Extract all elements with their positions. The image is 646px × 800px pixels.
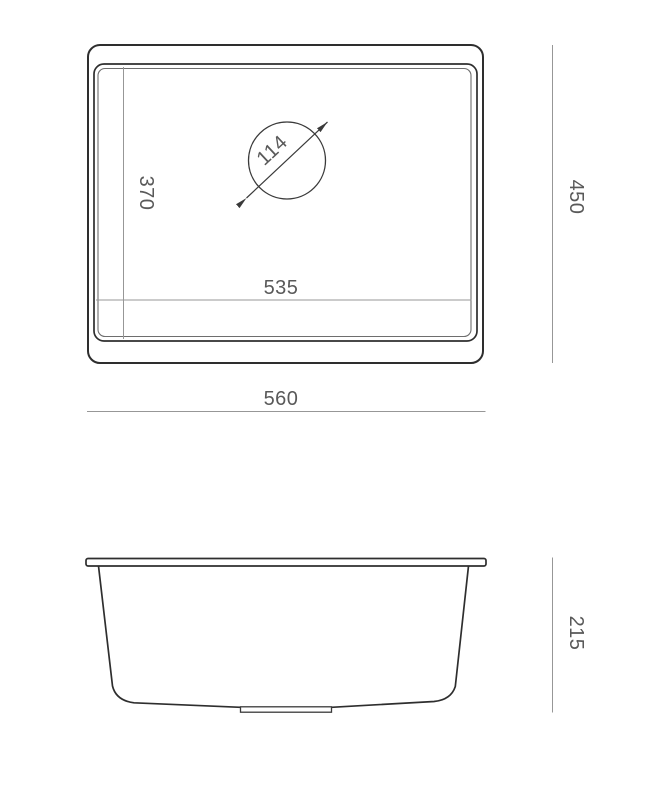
side-view: 215	[86, 558, 587, 713]
overall-width-label: 560	[264, 388, 299, 410]
side-view-drain-fitting	[241, 707, 332, 712]
overall-height-label: 450	[565, 180, 587, 215]
drawing-canvas: 114 370 535 450 560 215	[0, 0, 646, 800]
inner-width-label: 535	[264, 277, 299, 299]
drain-diameter-label: 114	[253, 131, 292, 170]
inner-depth-label: 370	[135, 176, 157, 211]
side-height-label: 215	[565, 616, 587, 651]
sink-technical-drawing: 114 370 535 450 560 215	[0, 0, 646, 800]
side-view-bowl-right-wall	[332, 566, 469, 707]
top-view-overall-dimensions: 450 560	[87, 45, 587, 412]
side-view-flange	[86, 559, 486, 567]
top-view: 114 370 535	[88, 45, 483, 363]
side-view-bowl-left-wall	[99, 566, 241, 707]
